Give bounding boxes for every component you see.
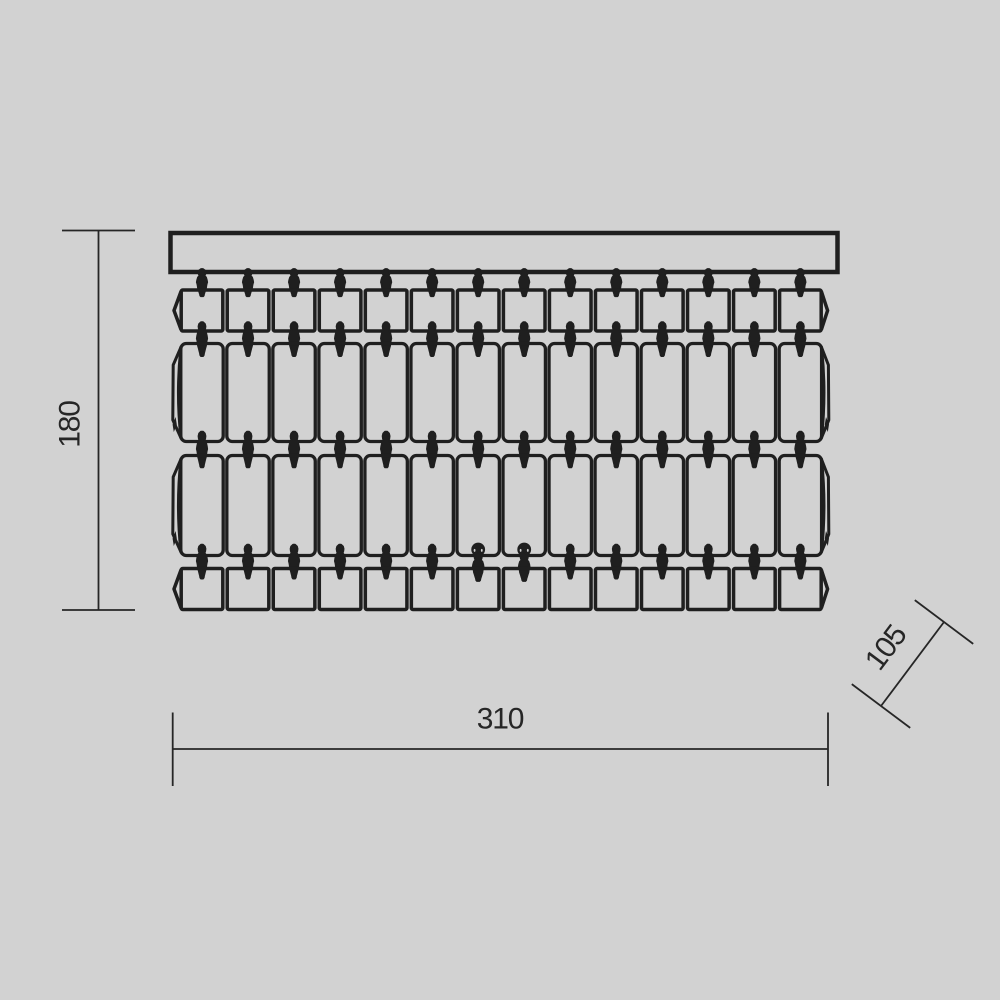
svg-text:310: 310 (477, 703, 524, 736)
svg-text:180: 180 (54, 401, 87, 448)
